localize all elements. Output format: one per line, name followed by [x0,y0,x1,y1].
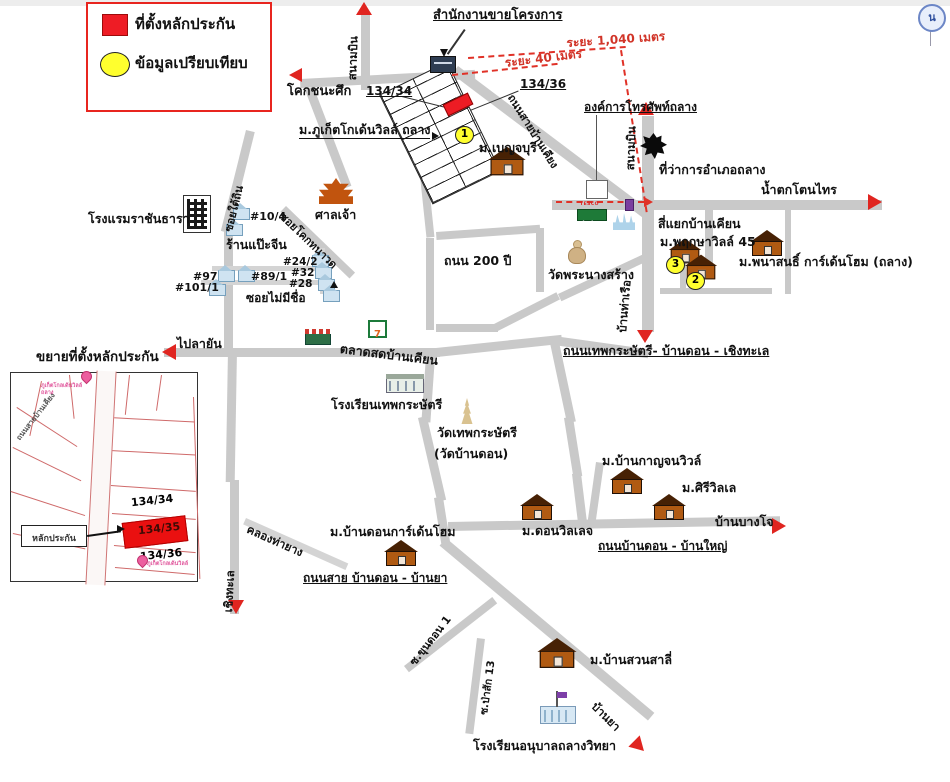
project-name-label: ม.ภูเก็ตโกเด้นวิลล์ ถลาง [299,122,430,139]
road-segment [361,12,370,90]
seven-eleven-digit: 7 [374,329,381,340]
map-canvas: ระยะ 1,040 เมตร ระยะ 40 เมตร 1 สำนักงานข… [0,0,950,782]
ban-ya-label: บ้านยา [588,700,622,734]
east-red-arrow-waterfall [868,194,882,210]
comparison-marker-3: 3 [666,256,685,274]
house-28-label: #28 [289,278,312,291]
comparison-marker-1: 1 [455,126,474,144]
road-segment [426,238,434,330]
distance-40m-label: ระยะ 40 เมตร [504,47,583,71]
inset-parcel-line [156,375,162,411]
inset-parcel-line [111,485,196,492]
legend-collateral-swatch [102,14,128,36]
legend-collateral-label: ที่ตั้งหลักประกัน [135,15,235,33]
shrine-label: ศาลเจ้า [315,207,356,222]
inset-lot-134-34-label: 134/34 [130,493,173,509]
ban-khian-intersection-label: สี่แยกบ้านเคียน [658,216,741,231]
west-red-arrow-layan [162,344,176,360]
road-segment [587,462,604,525]
compass-north-letter: น [928,11,936,24]
seven-eleven-icon: 7 [368,320,387,338]
sales-office-arrowhead [440,49,448,57]
to-layan-label: ไปลายัน [177,336,222,351]
inset-title: ขยายที่ตั้งหลักประกัน [36,349,159,365]
road-segment [436,324,498,332]
district-office-label: ที่ว่าการอำเภอถลาง [659,162,765,177]
suan-salee-label: ม.บ้านสวนสาลี่ [590,652,672,667]
phone-org-building-icon [586,180,608,199]
measure-arrowhead [644,197,653,207]
north-red-arrow [356,2,372,15]
lot-134-34-label: 134/34 [366,84,412,98]
thep-krasattri-road-label: ถนนเทพกระษัตรี- บ้านดอน - เชิงทะเล [563,343,769,358]
legend-comparison-swatch [100,52,130,77]
inset-road-label: ถนนสายบ้านเคียง [15,392,56,442]
anuban-school-building-icon [540,706,576,724]
ban-don-ya-road-label: ถนนสาย บ้านดอน - บ้านยา [303,571,447,585]
market-label: ตลาดสดบ้านเคียน [339,341,439,368]
thep-school-building-icon [386,374,424,393]
inset-collateral-callout-label: หลักประกัน [32,534,76,544]
buddha-icon [568,240,584,264]
west-red-arrow [289,68,302,82]
compass-stem [930,30,931,46]
don-village-label: ม.ดอนวิลเลจ [522,523,593,538]
inset-callout-arrowhead [117,525,125,533]
thep-school-label: โรงเรียนเทพกระษัตรี [331,397,442,412]
southeast-red-arrow-banya [628,735,649,756]
wat-thep-label-line2: (วัดบ้านดอน) [434,446,508,461]
lotus-sign-icon: Lotus [577,209,607,221]
road-segment [660,288,772,294]
sales-office-building-icon [430,56,456,73]
inset-parcel-line [115,567,195,575]
road-segment [494,292,560,331]
inset-collateral-callout-box: หลักประกัน [21,525,87,547]
phone-org-leader [596,115,597,181]
inset-parcel-line [109,417,195,422]
fountain-icon [613,213,635,230]
shop-icon [625,199,634,211]
don-village-house-icon [518,494,556,520]
house-89-1-label: #89/1 [251,270,287,283]
siri-ville-label: ม.ศิรีวิลเล [682,480,736,495]
inset-parcel-line [13,447,82,481]
soi-no-name-label: ซอยไม่มีชื่อ [246,291,306,305]
phone-org-label: องค์การโทรศัพท์ถลาง [584,100,697,114]
wat-thep-label-line1: วัดเทพกระษัตรี [437,425,517,440]
suan-salee-house-icon [535,638,579,668]
ban-don-garden-home-label: ม.บ้านดอนการ์เด้นโฮม [330,524,455,539]
siri-house-icon [650,494,688,520]
compass-north-icon: น [918,4,946,32]
inset-pin-bottom-label: ภูเก็ตโกลเด้นวิลล์ [147,561,188,568]
tesco-sign-text: TESCO [580,203,599,208]
market-stall-icon [305,329,331,345]
road-segment [436,335,562,357]
east-red-arrow-bangjo [772,518,786,534]
road-segment [536,228,544,292]
benjaburi-label: ม.เบญจบุรี [479,140,537,155]
road-200-years-label: ถนน 200 ปี [444,253,511,268]
ban-tha-ruea-label: บ้านท่าเรือ [616,280,634,334]
panasont-label: ม.พนาสนธิ์ การ์เด้นโฮม (ถลาง) [739,254,913,269]
road-segment [564,417,582,478]
pagoda-icon [456,398,478,424]
inset-parcel-line [125,375,130,415]
inset-parcel-line [110,450,196,455]
khok-chana-suek-label: โคกชนะศึก [287,84,351,100]
lotus-sign-label: Lotus [582,219,602,227]
road-segment [436,225,540,240]
ban-don-yai-road-label: ถนนบ้านดอน - บ้านใหญ่ [598,539,727,553]
waterfall-label: น้ำตกโตนไทร [761,182,837,197]
chinese-shop-label: ร้านแป๊ะจีน [226,237,287,252]
inset-parcel-line [11,491,85,516]
cherngtalay-label: เชิงทะเล [222,570,238,613]
legend-box: ที่ตั้งหลักประกัน ข้อมูลเปรียบเทียบ [86,2,272,112]
lot-134-36-label: 134/36 [520,77,566,91]
hotel-label: โรงแรมราชันธารา [88,211,190,226]
airport-label-right: สนามบิน [624,126,639,171]
kanchana-view-label: ม.บ้านกาญจนวิวล์ [602,453,701,468]
inset-collateral-map: 134/34 134/35 134/36 หลักประกัน ถนนสายบ้… [10,372,198,582]
comparison-marker-2: 2 [686,272,705,290]
inset-pin-top-label: ภูเก็ตโกลเด้นวิลล์ ถลาง [41,383,93,397]
khlong-tha-yang-label: คลองท่ายาง [244,523,305,560]
legend-comparison-label: ข้อมูลเปรียบเทียบ [135,54,248,72]
house-icon [323,290,340,302]
kanchana-house-icon [608,468,646,494]
sales-office-leader-line [447,29,465,54]
sales-office-label: สำนักงานขายโครงการ [433,8,563,24]
south-red-arrow-thep-road [637,330,653,343]
soi-no-name-arrow [330,281,338,288]
house-101-1-label: #101/1 [175,281,219,294]
airport-label-left: สนามบิน [346,36,361,81]
pruksa-ville-label: ม.พฤกษาวิลล์ 45 [660,234,756,249]
anuban-school-label: โรงเรียนอนุบาลถลางวิทยา [473,738,616,753]
inset-parcel-line [69,375,75,419]
project-arrowhead [432,132,439,140]
inset-road [85,371,116,586]
inset-map-pin [79,369,95,385]
ban-bang-jo-label: บ้านบางโจ [715,514,774,529]
road-segment [226,350,237,482]
ban-don-gh-house-icon [382,540,420,566]
